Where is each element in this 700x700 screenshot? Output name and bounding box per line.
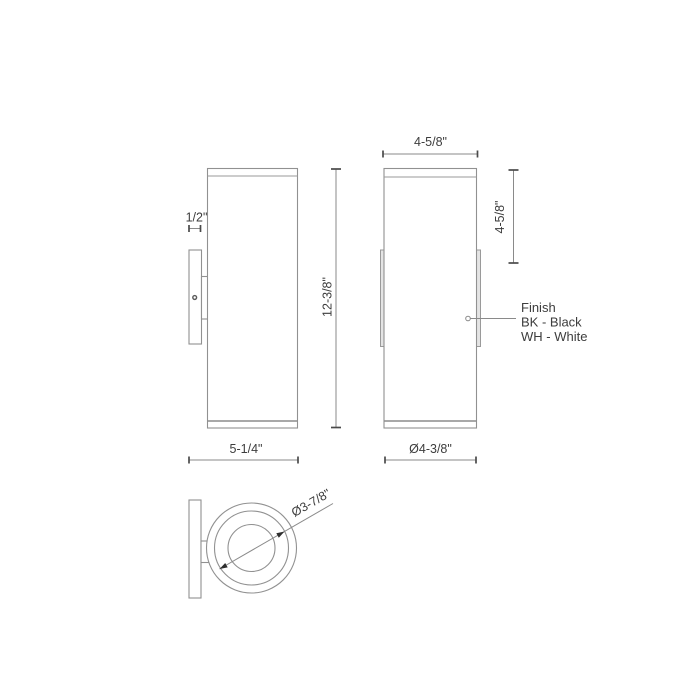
finish-note-option-black: BK - Black — [521, 315, 582, 330]
dim-overall-depth-label: 5-1/4" — [230, 442, 263, 456]
dim-overall-height-label: 12-3/8" — [321, 277, 335, 317]
dim-body-diameter: Ø4-3/8" — [385, 442, 476, 464]
front-view — [381, 169, 481, 429]
top-view-backplate — [189, 500, 201, 598]
top-view — [189, 500, 297, 598]
side-view-screw-icon — [193, 296, 197, 300]
dim-body-diameter-label: Ø4-3/8" — [409, 442, 452, 456]
dim-bracket-depth-label: 1/2" — [186, 211, 208, 225]
finish-note-option-white: WH - White — [521, 329, 587, 344]
finish-note-title: Finish — [521, 300, 556, 315]
technical-drawing-page: 1/2" 12-3/8" 5-1/4" 4-5/8" — [0, 0, 700, 700]
side-view — [189, 169, 298, 429]
dim-body-width-label: 4-5/8" — [414, 135, 447, 149]
dim-body-width: 4-5/8" — [383, 135, 478, 158]
dim-backplate-height: 4-5/8" — [493, 170, 519, 263]
dim-overall-depth: 5-1/4" — [189, 442, 298, 464]
dim-backplate-height-label: 4-5/8" — [493, 201, 507, 234]
front-view-cylinder-body — [384, 169, 477, 429]
finish-leader-dot — [466, 316, 471, 321]
finish-note: Finish BK - Black WH - White — [466, 300, 588, 344]
top-view-inner-circle — [228, 525, 275, 572]
dim-inner-diameter-label: Ø3-7/8" — [289, 486, 333, 519]
side-view-cylinder-body — [208, 169, 298, 429]
dim-bracket-depth: 1/2" — [186, 211, 208, 233]
dim-overall-height: 12-3/8" — [321, 169, 342, 428]
wall-sconce-dimension-drawing: 1/2" 12-3/8" 5-1/4" 4-5/8" — [0, 0, 700, 700]
